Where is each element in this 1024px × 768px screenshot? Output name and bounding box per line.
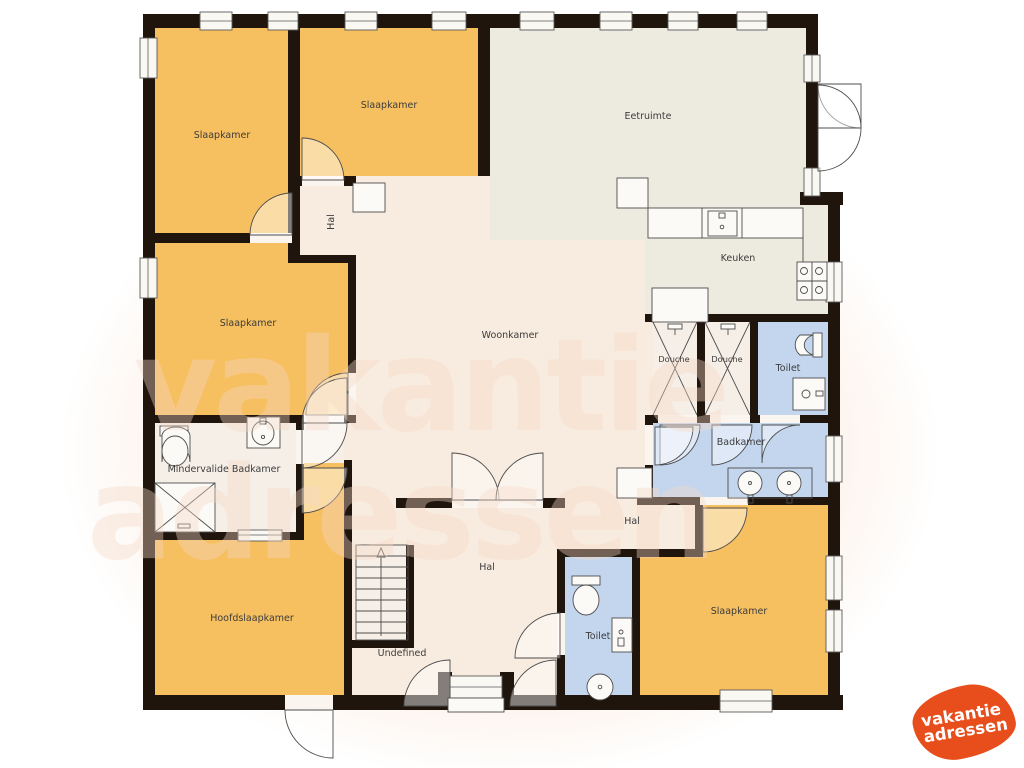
floorplan-page: vakantie adressen Slaapkamer Slaapkamer … xyxy=(0,0,1024,768)
label-hoofdslaapkamer: Hoofdslaapkamer xyxy=(210,613,294,624)
label-slaapkamer-bottom-right: Slaapkamer xyxy=(711,606,768,617)
label-undefined: Undefined xyxy=(378,648,427,659)
svg-text:adressen: adressen xyxy=(87,440,713,589)
label-badkamer: Badkamer xyxy=(717,437,766,448)
label-toilet-top: Toilet xyxy=(775,363,801,374)
svg-text:vakantie: vakantie xyxy=(134,312,726,461)
label-douche-2: Douche xyxy=(711,354,742,364)
label-hal-bottom: Hal xyxy=(479,562,495,573)
label-mindervalide-badkamer: Mindervalide Badkamer xyxy=(168,464,281,475)
label-woonkamer: Woonkamer xyxy=(482,330,539,341)
floorplan-svg: vakantie adressen Slaapkamer Slaapkamer … xyxy=(0,0,1024,768)
label-eetruimte: Eetruimte xyxy=(625,111,672,122)
dining-cabinet xyxy=(617,178,648,208)
label-toilet-bottom: Toilet xyxy=(585,631,611,642)
label-slaapkamer-top-left: Slaapkamer xyxy=(194,130,251,141)
label-keuken: Keuken xyxy=(721,253,756,264)
closet-hal-top xyxy=(353,183,385,212)
brand-logo: vakantie adressen xyxy=(905,680,1023,766)
stove-icon xyxy=(797,262,827,300)
label-slaapkamer-mid-left: Slaapkamer xyxy=(220,318,277,329)
patio-double-door xyxy=(818,84,861,171)
label-slaapkamer-top-mid: Slaapkamer xyxy=(361,100,418,111)
label-hal-top: Hal xyxy=(326,214,337,230)
entry-step xyxy=(448,698,504,712)
watermark-text: vakantie adressen xyxy=(87,312,726,589)
label-douche-1: Douche xyxy=(658,354,689,364)
kitchen-sink xyxy=(708,211,737,236)
label-hal-right: Hal xyxy=(624,516,640,527)
